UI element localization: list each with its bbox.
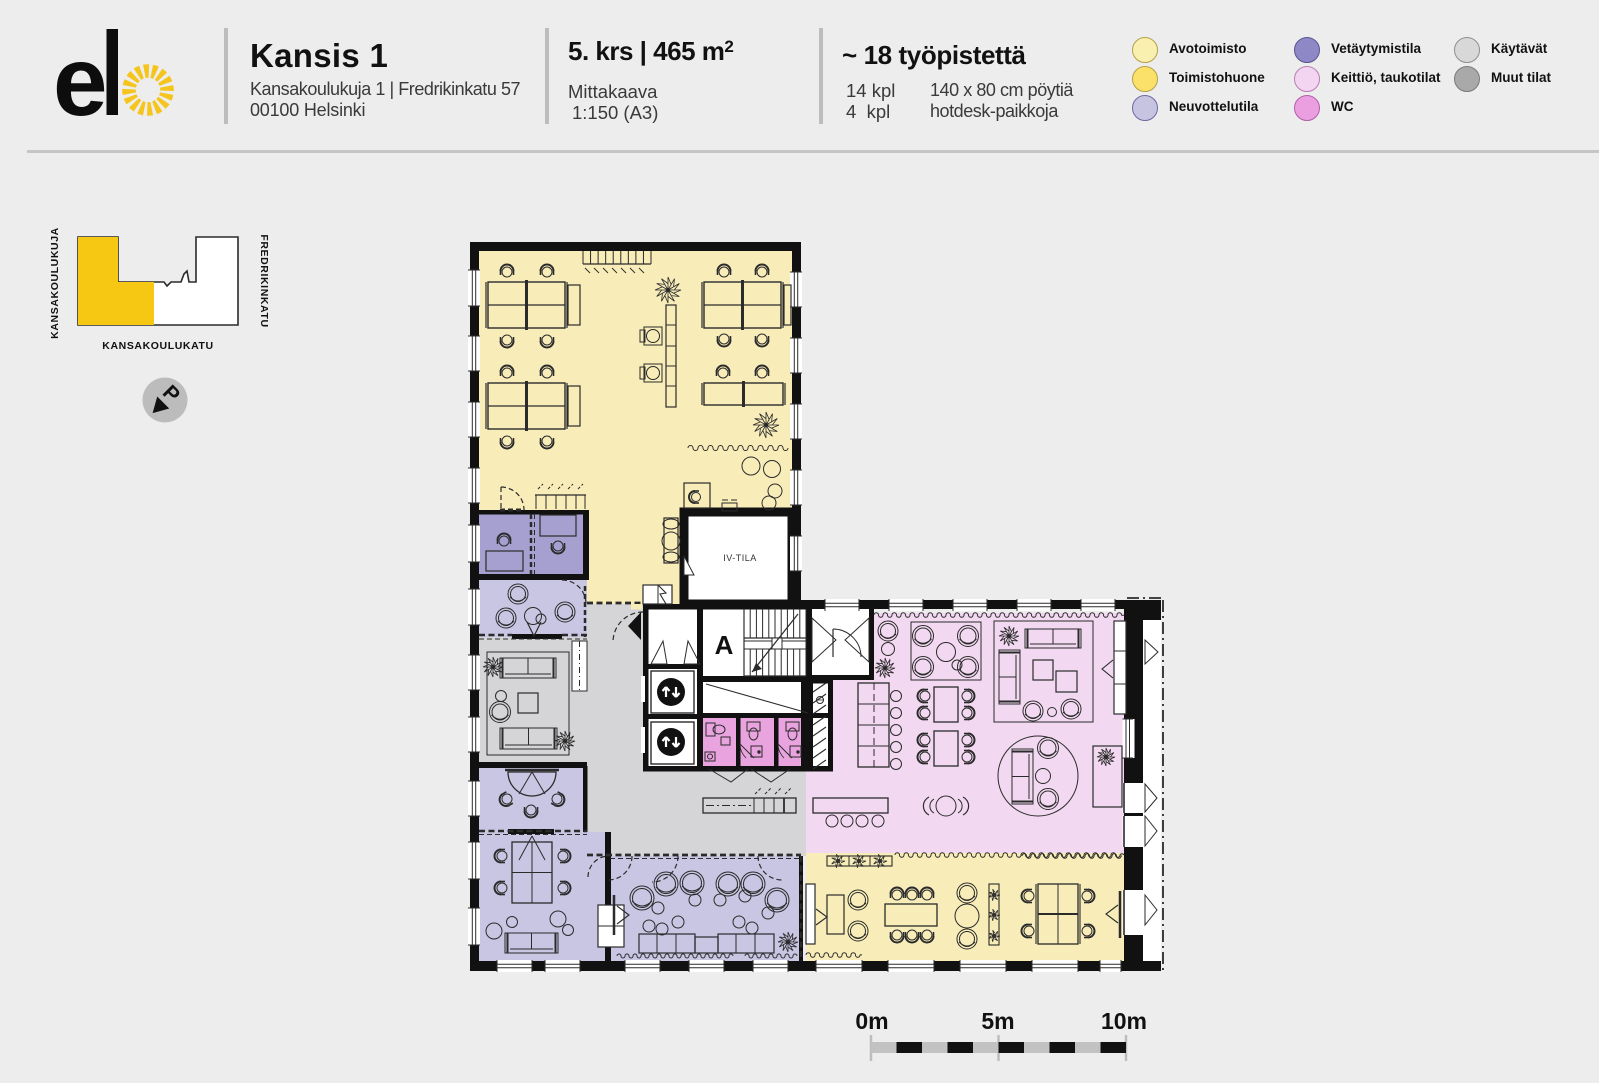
svg-text:FREDRIKINKATU: FREDRIKINKATU <box>258 234 270 327</box>
svg-text:A: A <box>715 630 734 660</box>
svg-text:KANSAKOULUKATU: KANSAKOULUKATU <box>102 340 213 352</box>
svg-text:KANSAKOULUKUJA: KANSAKOULUKUJA <box>49 227 61 339</box>
svg-text:5m: 5m <box>981 1008 1014 1034</box>
svg-text:0m: 0m <box>855 1008 888 1034</box>
svg-text:10m: 10m <box>1101 1008 1147 1034</box>
svg-text:IV-TILA: IV-TILA <box>723 553 757 563</box>
